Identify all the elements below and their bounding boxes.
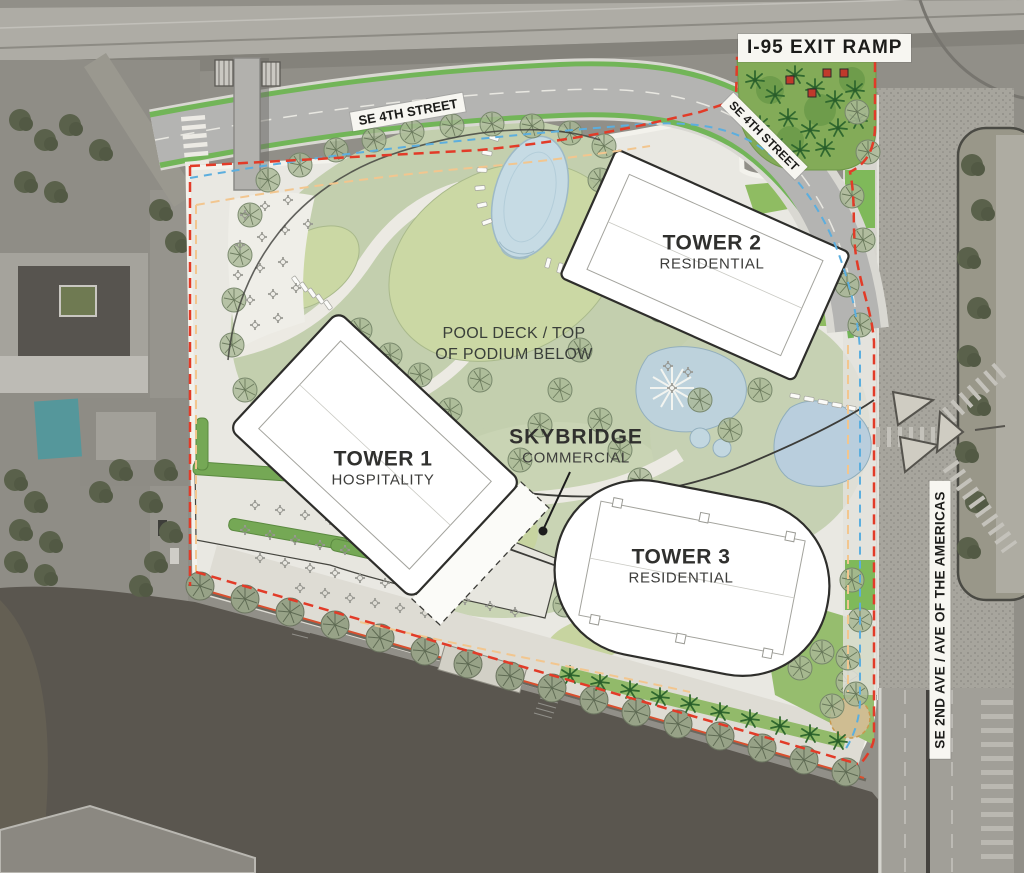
skybridge-program: COMMERCIAL bbox=[509, 449, 643, 466]
tower-1-program: HOSPITALITY bbox=[331, 471, 434, 488]
pool-deck-label: POOL DECK / TOP OF PODIUM BELOW bbox=[435, 324, 592, 366]
tower-2-program: RESIDENTIAL bbox=[660, 255, 765, 272]
tower-1-name: TOWER 1 bbox=[331, 447, 434, 471]
tower-3-label: TOWER 3 RESIDENTIAL bbox=[629, 545, 734, 586]
skybridge-label: SKYBRIDGE COMMERCIAL bbox=[509, 425, 643, 466]
tower-3-name: TOWER 3 bbox=[629, 545, 734, 569]
site-plan-page: I-95 EXIT RAMP SE 4TH STREET SE 4TH STRE… bbox=[0, 0, 1024, 873]
pool-deck-line2: OF PODIUM BELOW bbox=[435, 345, 592, 366]
skybridge-name: SKYBRIDGE bbox=[509, 425, 643, 449]
tower-3-program: RESIDENTIAL bbox=[629, 569, 734, 586]
tower-2-label: TOWER 2 RESIDENTIAL bbox=[660, 231, 765, 272]
tower-2-name: TOWER 2 bbox=[660, 231, 765, 255]
tower-1-label: TOWER 1 HOSPITALITY bbox=[331, 447, 434, 488]
pool-deck-line1: POOL DECK / TOP bbox=[435, 324, 592, 345]
se-2nd-ave-label: SE 2ND AVE / AVE OF THE AMERICAS bbox=[930, 481, 951, 759]
i95-exit-ramp-label: I-95 EXIT RAMP bbox=[738, 34, 911, 62]
